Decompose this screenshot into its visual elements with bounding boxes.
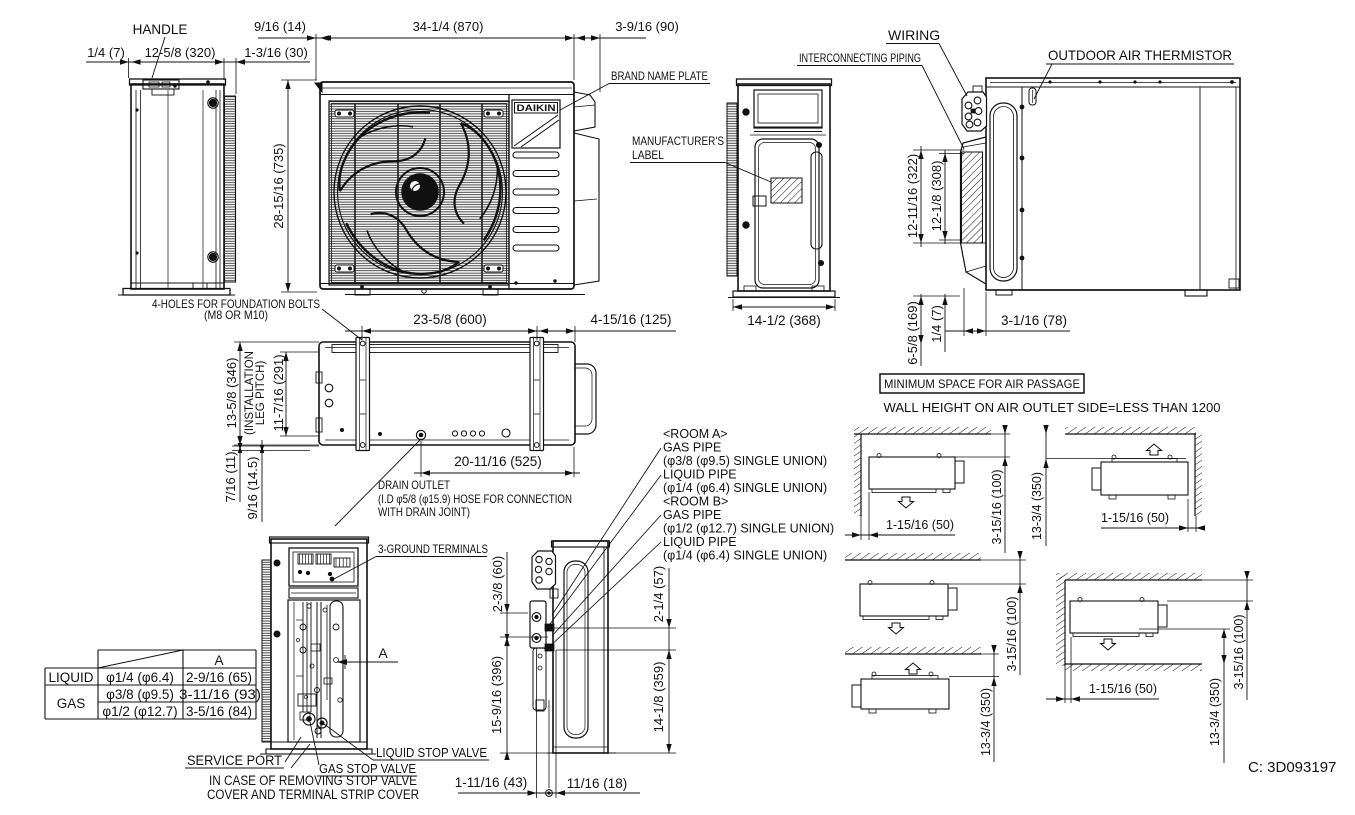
svg-text:3-9/16 (90): 3-9/16 (90)	[615, 19, 679, 34]
svg-text:<ROOM A>: <ROOM A>	[663, 427, 728, 441]
svg-text:BRAND NAME PLATE: BRAND NAME PLATE	[611, 69, 708, 83]
svg-text:(φ1/4 (φ6.4) SINGLE UNION): (φ1/4 (φ6.4) SINGLE UNION)	[663, 481, 827, 495]
svg-text:1-11/16 (43): 1-11/16 (43)	[455, 775, 528, 790]
svg-text:3-5/16 (84): 3-5/16 (84)	[186, 704, 252, 719]
svg-text:3-11/16 (93): 3-11/16 (93)	[179, 687, 261, 702]
svg-text:GAS PIPE: GAS PIPE	[663, 441, 721, 455]
svg-text:4-15/16 (125): 4-15/16 (125)	[590, 312, 671, 327]
svg-text:LABEL: LABEL	[632, 148, 664, 162]
svg-text:1-15/16 (50): 1-15/16 (50)	[1101, 511, 1169, 525]
svg-text:LIQUID PIPE: LIQUID PIPE	[663, 468, 737, 482]
svg-text:1-3/16 (30): 1-3/16 (30)	[244, 45, 308, 60]
svg-text:11-7/16 (291): 11-7/16 (291)	[271, 354, 286, 431]
svg-text:13-3/4 (350): 13-3/4 (350)	[1030, 472, 1044, 540]
svg-text:3-1/16 (78): 3-1/16 (78)	[1001, 313, 1067, 328]
svg-text:φ3/8 (φ9.5): φ3/8 (φ9.5)	[106, 687, 174, 702]
svg-text:15-9/16 (396): 15-9/16 (396)	[489, 656, 504, 734]
svg-text:LIQUID STOP VALVE: LIQUID STOP VALVE	[376, 745, 487, 760]
svg-text:3-15/16 (100): 3-15/16 (100)	[1005, 596, 1019, 671]
svg-text:<ROOM B>: <ROOM B>	[663, 495, 728, 509]
svg-text:HANDLE: HANDLE	[133, 22, 188, 37]
svg-text:9/16 (14.5): 9/16 (14.5)	[245, 457, 260, 520]
svg-text:GAS PIPE: GAS PIPE	[663, 508, 721, 522]
svg-text:SERVICE PORT: SERVICE PORT	[187, 753, 282, 768]
svg-text:1-15/16 (50): 1-15/16 (50)	[886, 518, 954, 532]
svg-text:IN CASE OF REMOVING STOP VALVE: IN CASE OF REMOVING STOP VALVE	[209, 773, 417, 788]
svg-text:13-5/8 (346): 13-5/8 (346)	[224, 358, 239, 429]
svg-text:7/16 (11): 7/16 (11)	[223, 451, 238, 502]
svg-text:LEG PITCH): LEG PITCH)	[255, 361, 267, 426]
svg-text:A: A	[214, 653, 223, 668]
svg-text:1-15/16 (50): 1-15/16 (50)	[1089, 682, 1157, 696]
svg-text:GAS: GAS	[57, 696, 86, 711]
svg-text:(φ1/4 (φ6.4) SINGLE UNION): (φ1/4 (φ6.4) SINGLE UNION)	[663, 549, 827, 563]
svg-text:(φ1/2 (φ12.7) SINGLE UNION): (φ1/2 (φ12.7) SINGLE UNION)	[663, 522, 834, 536]
svg-text:2-9/16 (65): 2-9/16 (65)	[186, 670, 252, 685]
svg-text:C: 3D093197: C: 3D093197	[1248, 759, 1336, 776]
svg-text:WIRING: WIRING	[888, 27, 940, 43]
svg-text:(M8 OR M10): (M8 OR M10)	[204, 308, 268, 322]
svg-text:14-1/8 (359): 14-1/8 (359)	[651, 662, 666, 733]
svg-text:3-GROUND TERMINALS: 3-GROUND TERMINALS	[378, 542, 488, 556]
svg-text:6-5/8 (169): 6-5/8 (169)	[905, 301, 920, 365]
svg-text:MANUFACTURER'S: MANUFACTURER'S	[632, 134, 724, 148]
svg-text:φ1/2 (φ12.7): φ1/2 (φ12.7)	[102, 704, 177, 719]
svg-text:1/4 (7): 1/4 (7)	[929, 305, 944, 343]
svg-text:3-15/16 (100): 3-15/16 (100)	[1232, 614, 1246, 689]
svg-text:14-1/2 (368): 14-1/2 (368)	[747, 313, 821, 328]
svg-text:12-1/8 (308): 12-1/8 (308)	[929, 161, 944, 232]
svg-text:12-5/8 (320): 12-5/8 (320)	[145, 45, 216, 60]
svg-text:2-3/8 (60): 2-3/8 (60)	[490, 556, 505, 612]
svg-text:A: A	[378, 645, 388, 661]
svg-text:DAIKIN: DAIKIN	[517, 103, 556, 113]
svg-text:LIQUID: LIQUID	[48, 670, 93, 685]
svg-text:9/16 (14): 9/16 (14)	[254, 19, 306, 34]
svg-text:12-11/16 (322): 12-11/16 (322)	[905, 154, 920, 238]
svg-text:WALL HEIGHT ON AIR OUTLET SIDE: WALL HEIGHT ON AIR OUTLET SIDE=LESS THAN…	[884, 400, 1221, 415]
svg-text:13-3/4 (350): 13-3/4 (350)	[979, 688, 993, 756]
svg-text:28-15/16 (735): 28-15/16 (735)	[271, 143, 286, 228]
svg-text:OUTDOOR AIR THERMISTOR: OUTDOOR AIR THERMISTOR	[1048, 47, 1232, 63]
svg-text:(I.D φ5/8 (φ15.9) HOSE FOR CON: (I.D φ5/8 (φ15.9) HOSE FOR CONNECTION	[378, 492, 572, 506]
svg-text:34-1/4 (870): 34-1/4 (870)	[413, 19, 484, 34]
svg-text:11/16 (18): 11/16 (18)	[567, 776, 628, 791]
svg-text:INTERCONNECTING PIPING: INTERCONNECTING PIPING	[799, 51, 921, 65]
svg-text:(φ3/8 (φ9.5) SINGLE UNION): (φ3/8 (φ9.5) SINGLE UNION)	[663, 454, 827, 468]
svg-text:1/4 (7): 1/4 (7)	[87, 45, 125, 60]
svg-text:MINIMUM SPACE FOR AIR PASSAGE: MINIMUM SPACE FOR AIR PASSAGE	[884, 377, 1080, 391]
svg-text:LIQUID PIPE: LIQUID PIPE	[663, 535, 737, 549]
svg-text:20-11/16 (525): 20-11/16 (525)	[454, 454, 542, 469]
svg-text:3-15/16 (100): 3-15/16 (100)	[990, 469, 1004, 544]
svg-text:WITH DRAIN JOINT): WITH DRAIN JOINT)	[378, 505, 470, 519]
svg-text:DRAIN OUTLET: DRAIN OUTLET	[378, 478, 451, 492]
svg-text:23-5/8 (600): 23-5/8 (600)	[413, 312, 487, 327]
svg-text:COVER AND TERMINAL STRIP COVER: COVER AND TERMINAL STRIP COVER	[207, 787, 419, 802]
svg-text:φ1/4 (φ6.4): φ1/4 (φ6.4)	[106, 670, 174, 685]
svg-text:2-1/4 (57): 2-1/4 (57)	[651, 566, 666, 622]
svg-text:13-3/4 (350): 13-3/4 (350)	[1208, 678, 1222, 746]
